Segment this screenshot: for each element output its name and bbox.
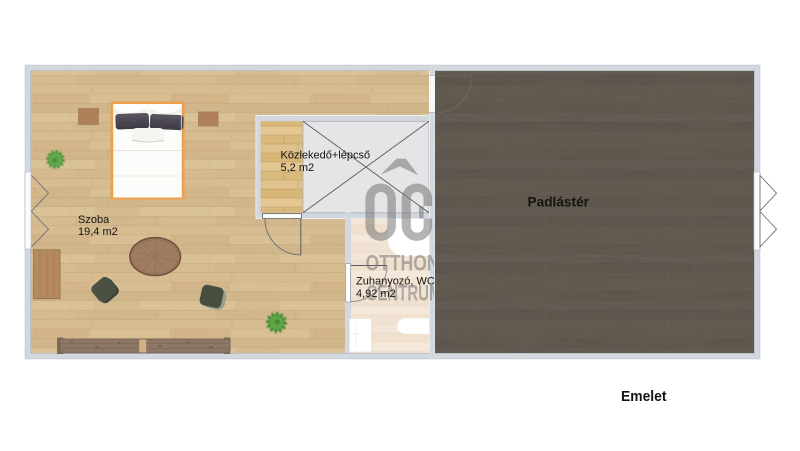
svg-text:5,2 m2: 5,2 m2 [281,162,315,174]
svg-text:Közlekedő+lépcső: Közlekedő+lépcső [281,150,371,162]
svg-text:4,92 m2: 4,92 m2 [356,288,396,300]
svg-text:Zuhanyozó, WC: Zuhanyozó, WC [356,276,435,288]
svg-text:OTTHON: OTTHON [366,251,440,276]
svg-text:Padlástér: Padlástér [528,194,590,210]
svg-text:Emelet: Emelet [621,388,667,405]
svg-text:Szoba: Szoba [78,214,110,226]
svg-text:19,4 m2: 19,4 m2 [78,226,118,238]
